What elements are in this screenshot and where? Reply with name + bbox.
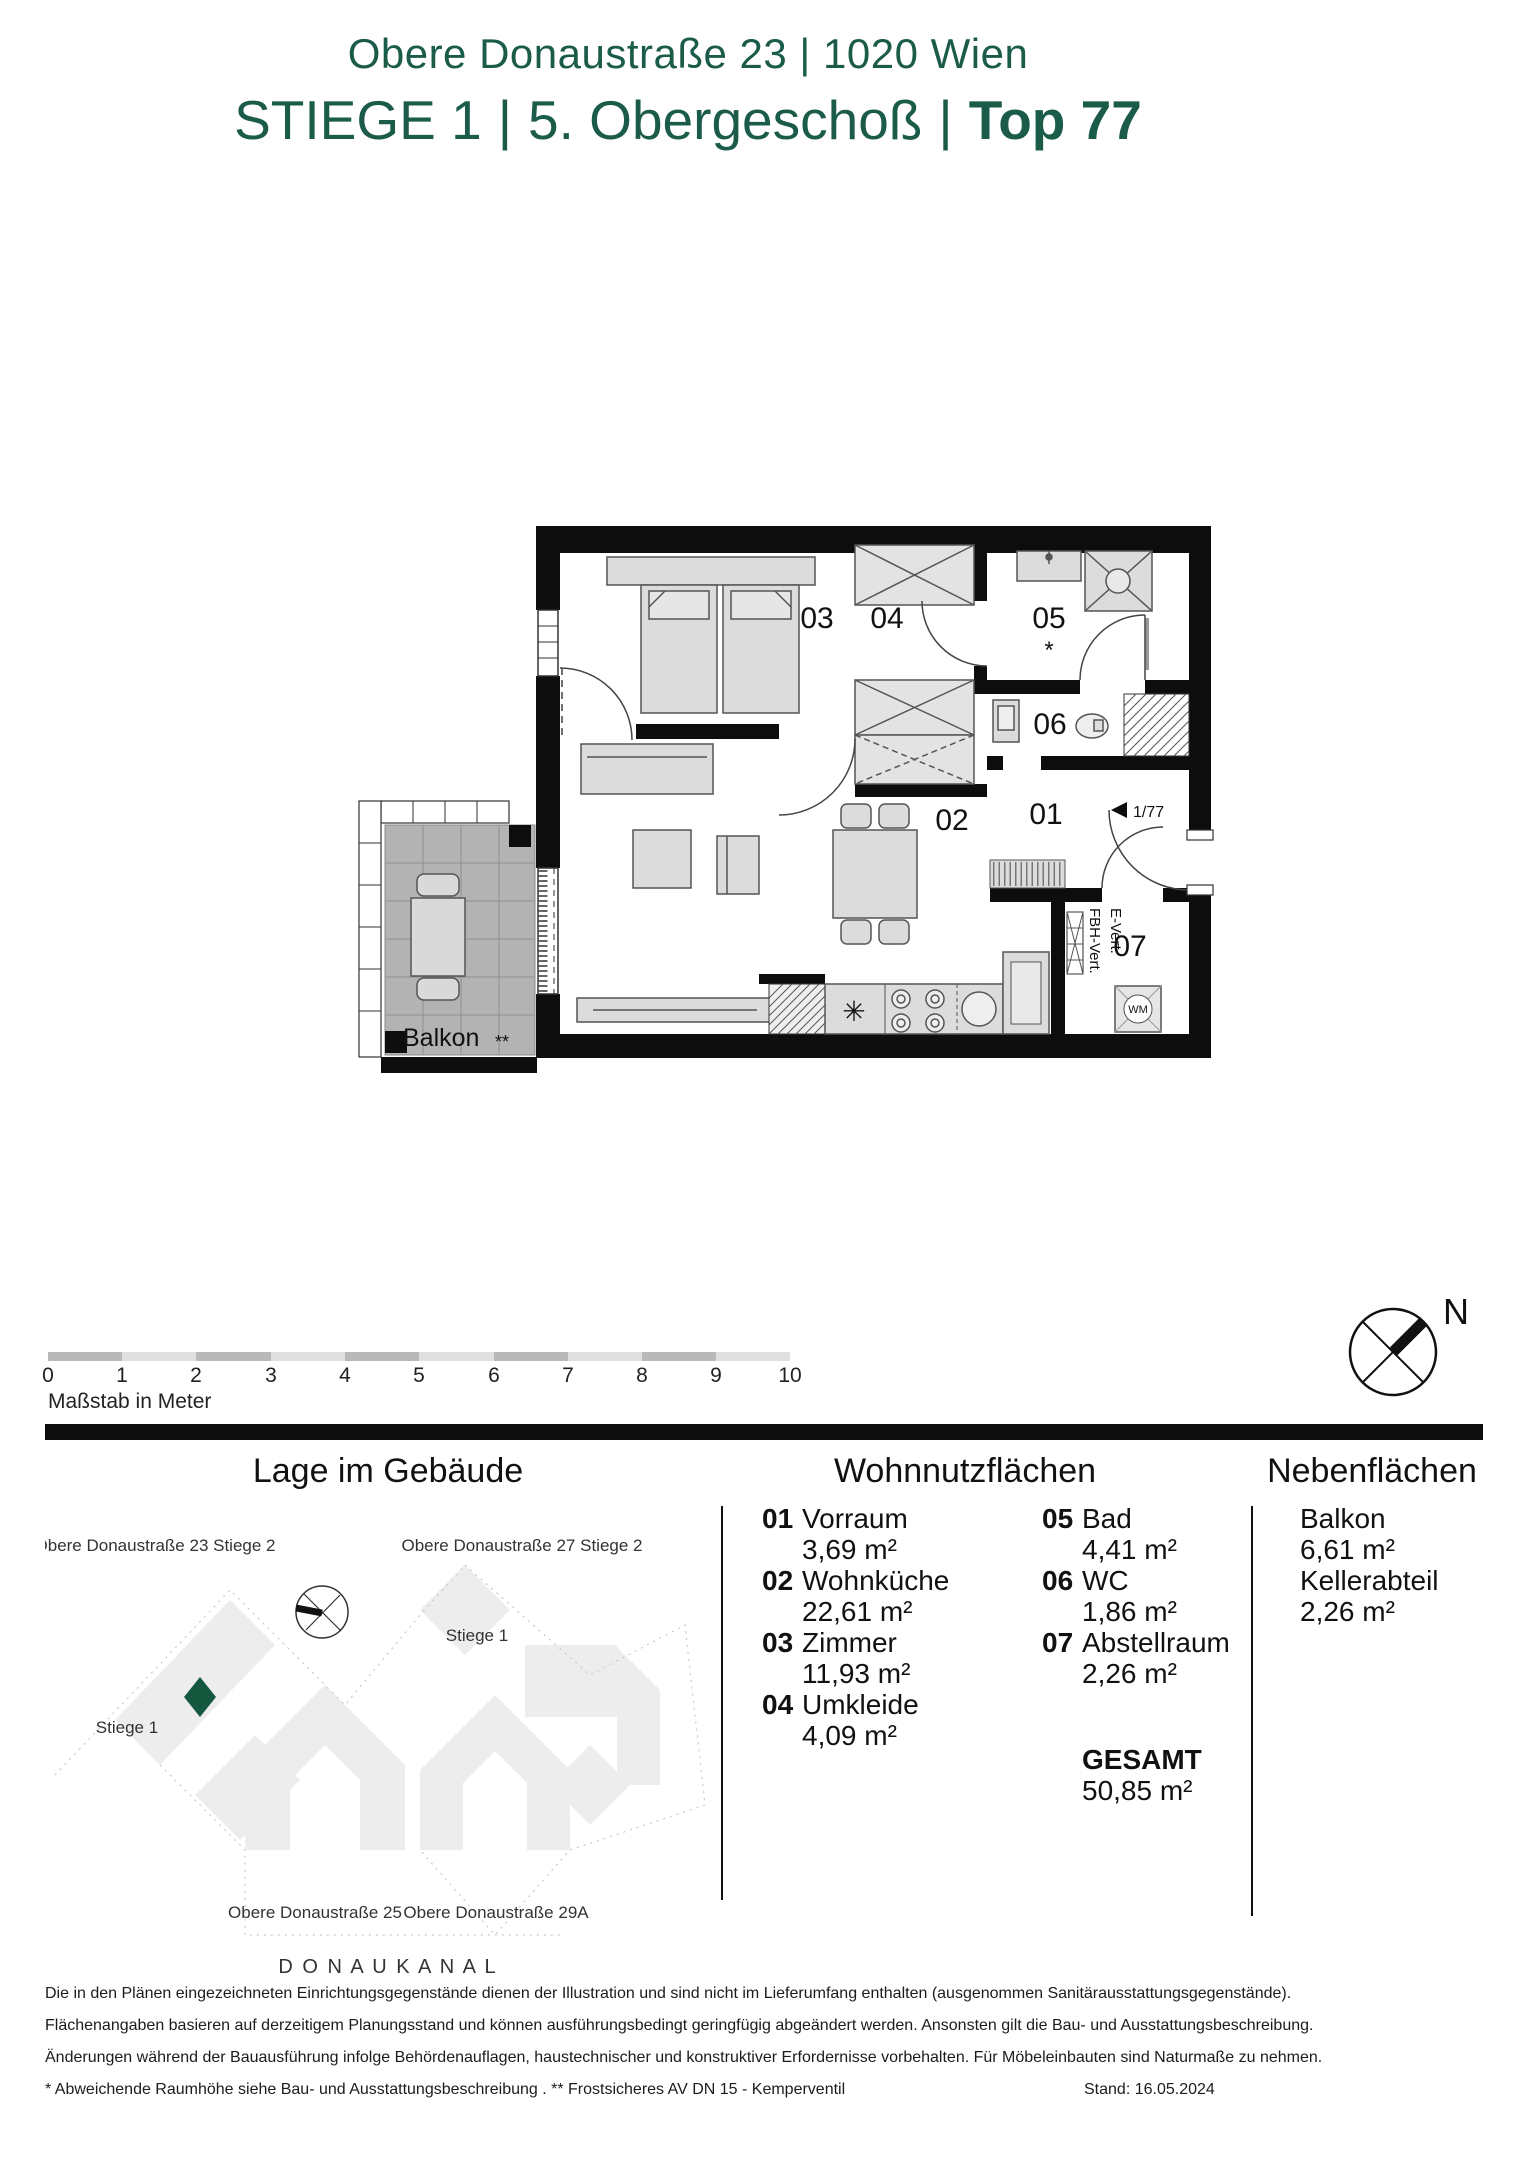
list-item: 03Zimmer 11,93 m²	[762, 1627, 949, 1689]
room-number: 02	[762, 1565, 802, 1596]
stiege-label: STIEGE 1	[234, 89, 482, 151]
storage-room: WM FBH-Vert. E-Vert.	[1067, 908, 1161, 1032]
room-label-02: 02	[935, 804, 968, 837]
aux-room-area: 2,26 m²	[1300, 1596, 1439, 1627]
room-area: 2,26 m²	[1082, 1658, 1230, 1689]
site-label-stiege1-left: Stiege 1	[96, 1718, 158, 1737]
entrance-arrow-icon	[1111, 802, 1127, 818]
room-list-col-a: 01Vorraum 3,69 m² 02Wohnküche 22,61 m² 0…	[762, 1503, 949, 1751]
room-number: 03	[762, 1627, 802, 1658]
address-line: Obere Donaustraße 23 | 1020 Wien	[0, 30, 1376, 78]
column-divider	[1251, 1506, 1253, 1916]
aux-room-area: 6,61 m²	[1300, 1534, 1439, 1565]
scale-caption: Maßstab in Meter	[48, 1390, 211, 1414]
scale-tick: 3	[251, 1364, 291, 1388]
aux-room-name: Kellerabteil	[1300, 1565, 1439, 1596]
svg-text:WM: WM	[1128, 1004, 1148, 1016]
room-name: Wohnküche	[802, 1565, 949, 1596]
balcony-door	[538, 868, 558, 994]
main-areas-title: Wohnnutzflächen	[745, 1452, 1185, 1491]
room-area: 11,93 m²	[802, 1658, 949, 1689]
total-value: 50,85 m²	[1082, 1775, 1202, 1806]
list-item: Kellerabteil 2,26 m²	[1300, 1565, 1439, 1627]
room-number: 04	[762, 1689, 802, 1720]
scale-tick: 8	[622, 1364, 662, 1388]
room-name: Vorraum	[802, 1503, 908, 1534]
floor-label: 5. Obergeschoß	[528, 89, 922, 151]
aux-areas-title: Nebenflächen	[1262, 1452, 1482, 1491]
scale-tick: 2	[176, 1364, 216, 1388]
sink-symbol: ✳	[842, 996, 865, 1027]
aux-room-list: Balkon 6,61 m² Kellerabteil 2,26 m²	[1300, 1503, 1439, 1627]
disclaimer-line: Flächenangaben basieren auf derzeitigem …	[45, 2010, 1305, 2042]
room-area: 22,61 m²	[802, 1596, 949, 1627]
room-number: 01	[762, 1503, 802, 1534]
site-label-29a: Obere Donaustraße 29A	[403, 1903, 589, 1922]
list-item: 02Wohnküche 22,61 m²	[762, 1565, 949, 1627]
double-bed	[607, 557, 815, 713]
site-plan: Obere Donaustraße 23 Stiege 2 Obere Dona…	[45, 1505, 725, 1980]
room-number: 06	[1042, 1565, 1082, 1596]
shaft-hatched	[1124, 694, 1189, 756]
site-compass-icon	[296, 1586, 348, 1638]
room-number: 07	[1042, 1627, 1082, 1658]
room-label-07: 07	[1113, 930, 1146, 963]
room-name: Umkleide	[802, 1689, 919, 1720]
scale-tick: 1	[102, 1364, 142, 1388]
site-label-23: Obere Donaustraße 23 Stiege 2	[45, 1536, 275, 1555]
scale-tick: 6	[474, 1364, 514, 1388]
entrance-label: 1/77	[1133, 804, 1164, 821]
kitchen: ✳	[769, 952, 1049, 1034]
scale-tick: 7	[548, 1364, 588, 1388]
washing-machine-icon: WM	[1115, 986, 1161, 1032]
title-line: STIEGE 1|5. Obergeschoß|Top 77	[0, 88, 1376, 152]
shaft-label-1: FBH-Vert.	[1086, 908, 1103, 974]
scale-tick: 5	[399, 1364, 439, 1388]
bedroom-window	[538, 610, 558, 676]
site-label-25: Obere Donaustraße 25	[228, 1903, 402, 1922]
room-name: Zimmer	[802, 1627, 897, 1658]
list-item: Balkon 6,61 m²	[1300, 1503, 1439, 1565]
room-label-05: 05	[1032, 602, 1065, 635]
room-area: 4,09 m²	[802, 1720, 949, 1751]
room-list-col-b: 05Bad 4,41 m² 06WC 1,86 m² 07Abstellraum…	[1042, 1503, 1230, 1689]
separator: |	[922, 89, 968, 151]
scale-tick: 4	[325, 1364, 365, 1388]
disclaimer-line: Die in den Plänen eingezeichneten Einric…	[45, 1978, 1305, 2010]
room-label-03: 03	[800, 602, 833, 635]
list-item: 06WC 1,86 m²	[1042, 1565, 1230, 1627]
list-item: 01Vorraum 3,69 m²	[762, 1503, 949, 1565]
room-name: Abstellraum	[1082, 1627, 1230, 1658]
room-name: Bad	[1082, 1503, 1132, 1534]
site-label-donaukanal: D O N A U K A N A L	[278, 1956, 497, 1978]
room-area: 1,86 m²	[1082, 1596, 1230, 1627]
wardrobes	[855, 545, 974, 784]
list-item: 07Abstellraum 2,26 m²	[1042, 1627, 1230, 1689]
north-arrow-icon: N	[1335, 1282, 1485, 1402]
floor-plan: Balkon **	[345, 500, 1225, 1100]
total-block: GESAMT 50,85 m²	[1082, 1744, 1202, 1806]
scale-tick: 9	[696, 1364, 736, 1388]
room-label-04: 04	[870, 602, 903, 635]
balkon-note: **	[495, 1032, 509, 1052]
scale-tick: 0	[28, 1364, 68, 1388]
plan-date: Stand: 16.05.2024	[1084, 2074, 1215, 2106]
aux-room-name: Balkon	[1300, 1503, 1439, 1534]
site-label-stiege1-right: Stiege 1	[446, 1626, 508, 1645]
room-label-01: 01	[1029, 798, 1062, 831]
kitchen-sink-icon	[962, 992, 996, 1026]
site-section-title: Lage im Gebäude	[168, 1452, 608, 1491]
separator: |	[482, 89, 528, 151]
coat-rack	[990, 860, 1065, 888]
scale-tick: 10	[770, 1364, 810, 1388]
scale-bar: 0 1 2 3 4 5 6 7 8 9 10	[48, 1352, 790, 1392]
list-item: 04Umkleide 4,09 m²	[762, 1689, 949, 1751]
section-divider	[45, 1424, 1483, 1440]
north-label: N	[1443, 1291, 1469, 1332]
unit-label: Top 77	[969, 89, 1142, 151]
total-label: GESAMT	[1082, 1744, 1202, 1775]
room-name: WC	[1082, 1565, 1129, 1596]
floorplan-sheet: Obere Donaustraße 23 | 1020 Wien STIEGE …	[0, 0, 1527, 2160]
bad-note: *	[1044, 637, 1053, 664]
balkon-label: Balkon	[403, 1024, 479, 1052]
balcony-table-chairs	[411, 874, 465, 1000]
room-number: 05	[1042, 1503, 1082, 1534]
room-label-06: 06	[1033, 708, 1066, 741]
entrance-door	[1187, 830, 1213, 895]
disclaimer-line: Änderungen während der Bauausführung inf…	[45, 2042, 1305, 2074]
balcony: Balkon **	[359, 801, 537, 1073]
list-item: 05Bad 4,41 m²	[1042, 1503, 1230, 1565]
site-label-27: Obere Donaustraße 27 Stiege 2	[402, 1536, 643, 1555]
header: Obere Donaustraße 23 | 1020 Wien STIEGE …	[0, 30, 1376, 152]
room-area: 4,41 m²	[1082, 1534, 1230, 1565]
room-area: 3,69 m²	[802, 1534, 949, 1565]
